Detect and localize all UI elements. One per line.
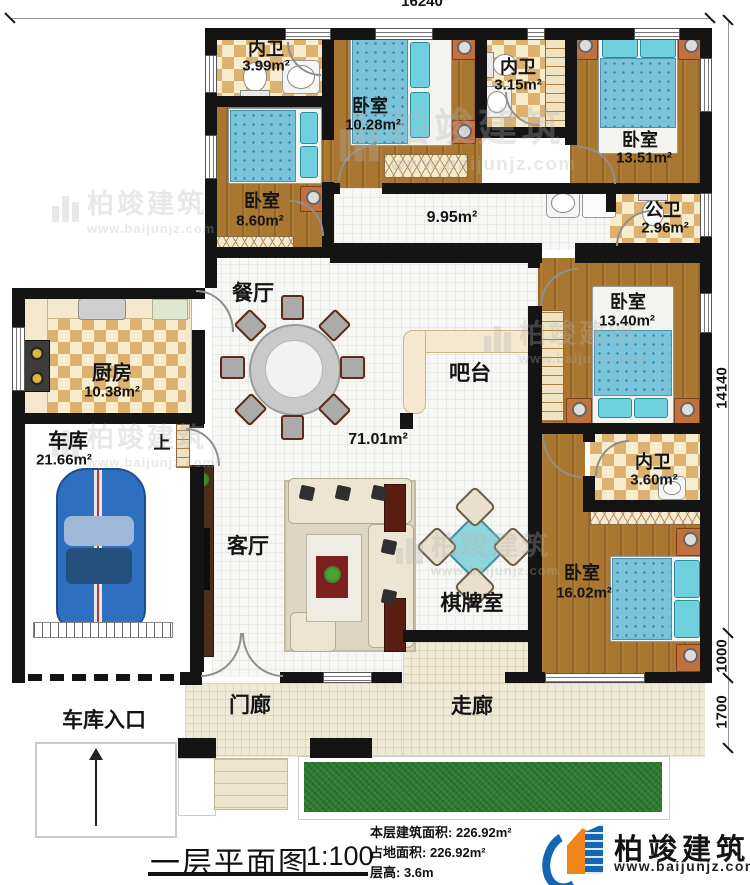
wall (505, 672, 545, 683)
bed-pillow (410, 92, 430, 138)
bed-pillow (300, 146, 318, 178)
bed-duvet (600, 58, 676, 128)
stoop (178, 758, 216, 816)
room-area-bedroom-b: 13.51m² (616, 150, 672, 167)
car-roof (66, 548, 132, 584)
window (205, 135, 217, 179)
hallway-floor (334, 188, 624, 250)
bed-duvet (230, 110, 296, 182)
room-label-living: 客厅 (227, 530, 269, 560)
car-windshield (64, 516, 134, 546)
bed-duvet (594, 330, 672, 396)
room-area-bedroom-c: 8.60m² (236, 213, 284, 230)
dimension-right-value: 14140 (714, 367, 731, 409)
wardrobe (384, 154, 468, 178)
stat-label: 本层建筑面积: (370, 825, 452, 840)
dimension-line-top (10, 18, 710, 19)
bed-pillow (634, 398, 668, 418)
wall (583, 476, 595, 502)
room-label-gongwei: 公卫 (645, 196, 681, 222)
bar-counter (403, 330, 426, 414)
wall (700, 28, 712, 683)
room-label-dining: 餐厅 (232, 277, 274, 307)
sofa-pillow (299, 485, 316, 502)
wall (528, 423, 712, 434)
sofa-pillow (335, 485, 352, 502)
sofa-pillow (381, 589, 398, 606)
window (700, 58, 712, 112)
stat-value: 226.92m² (430, 845, 486, 860)
stat-floor-height: 层高: 3.6m (370, 862, 434, 881)
stat-building-area: 本层建筑面积: 226.92m² (370, 822, 512, 841)
dimension-1000-value: 1000 (714, 639, 731, 672)
side-cabinet (384, 598, 406, 652)
bed-duvet (612, 558, 672, 640)
dining-chair (281, 295, 304, 320)
room-area-garage: 21.66m² (36, 452, 92, 469)
wall (475, 28, 487, 138)
corridor-floor (403, 683, 705, 757)
wall (322, 28, 334, 140)
closet (541, 310, 564, 422)
room-area-kitchen: 10.38m² (84, 384, 140, 401)
wall (400, 413, 413, 429)
driveway-arrow (95, 756, 97, 826)
room-label-garage: 车库 (48, 425, 88, 454)
wall (372, 672, 402, 683)
wall (583, 500, 712, 512)
stat-value: 3.6m (404, 865, 434, 880)
driveway (35, 742, 177, 838)
room-area-neiwei-b: 3.15m² (494, 77, 542, 94)
drawing-scale: 1:100 (306, 841, 374, 872)
kitchen-sink-icon (78, 298, 126, 320)
dining-chair (340, 356, 365, 379)
wall (575, 243, 712, 263)
kitchen-appliance (152, 299, 188, 320)
room-area-bedroom-e: 16.02m² (556, 585, 612, 602)
driveway-arrow-head (89, 748, 103, 760)
room-area-neiwei-c: 3.60m² (630, 472, 678, 489)
dimension-1700-value: 1700 (714, 695, 731, 728)
wall (606, 194, 616, 212)
wall (475, 127, 575, 138)
dining-chair (281, 415, 304, 440)
wall (205, 96, 334, 107)
room-label-kitchen: 厨房 (92, 357, 132, 386)
room-label-bedroom-d: 卧室 (610, 288, 646, 314)
garage-door-dashed (28, 674, 178, 681)
wall (280, 672, 323, 683)
room-label-bedroom-c: 卧室 (244, 187, 280, 213)
watermark-logo-icon (52, 196, 79, 222)
wall (528, 306, 542, 676)
stat-label: 层高: (370, 865, 400, 880)
entry-steps (214, 758, 288, 810)
dining-chair (220, 356, 245, 379)
room-label-bedroom-b: 卧室 (622, 126, 658, 152)
bed-pillow (410, 42, 430, 88)
room-label-bar: 吧台 (449, 357, 491, 387)
stat-value: 226.92m² (456, 825, 512, 840)
title-underline (148, 872, 368, 876)
room-area-neiwei-a: 3.99m² (242, 58, 290, 75)
porch-pillar (310, 738, 372, 758)
window (527, 28, 545, 40)
wall (583, 434, 595, 442)
room-area-gongwei: 2.96m² (641, 220, 689, 237)
room-label-bedroom-e: 卧室 (564, 559, 600, 585)
lawn (304, 762, 662, 812)
hallway-area: 9.95m² (427, 209, 478, 227)
room-area-living: 71.01m² (348, 431, 408, 449)
nightstand (452, 120, 476, 144)
window (12, 327, 25, 391)
nightstand (674, 398, 700, 424)
bed-pillow (300, 112, 318, 144)
floor-plan: 16240 14140 1000 1700 (0, 0, 750, 885)
parking-stop-strip (33, 622, 173, 638)
stove-icon (24, 340, 50, 392)
brand-website: www.baijunjz.com (614, 858, 750, 874)
watermark: 柏竣建筑www.baijunjz.com (52, 182, 215, 236)
window (545, 673, 645, 683)
wall (205, 247, 334, 258)
wall (192, 330, 205, 424)
window (323, 672, 372, 683)
bed-pillow (598, 398, 632, 418)
wall (334, 183, 340, 194)
room-label-chess: 棋牌室 (441, 587, 504, 617)
stairs-up-label: 上 (154, 429, 171, 454)
window (205, 55, 217, 93)
wall (645, 672, 712, 683)
closet (545, 33, 566, 131)
wall (565, 28, 577, 145)
wall (403, 630, 542, 642)
dimension-top-value: 16240 (401, 0, 443, 10)
window (285, 28, 331, 40)
wall (12, 288, 205, 299)
sofa-pillow (381, 539, 398, 556)
stat-label: 占地面积: (370, 845, 426, 860)
room-label-bedroom-a: 卧室 (352, 92, 388, 118)
wall (180, 672, 202, 685)
room-area-bedroom-a: 10.28m² (345, 117, 401, 134)
brand-logo-icon (543, 822, 609, 882)
stat-land-area: 占地面积: 226.92m² (370, 842, 486, 861)
sofa-pillow (371, 485, 388, 502)
wall (382, 183, 712, 194)
room-area-bedroom-d: 13.40m² (599, 313, 655, 330)
room-label-neiwei-c: 内卫 (635, 448, 671, 474)
wall (528, 263, 540, 268)
window (634, 28, 680, 40)
room-label-neiwei-b: 内卫 (500, 53, 536, 79)
dining-table-top (265, 340, 323, 398)
bed-pillow (674, 600, 700, 638)
plant-icon (324, 566, 341, 583)
wall (190, 424, 204, 428)
logo-building-blue (585, 824, 603, 874)
room-label-corridor: 走廊 (451, 690, 493, 720)
room-label-porch: 门廊 (229, 689, 271, 719)
nightstand (566, 398, 592, 424)
room-label-garage-entrance: 车库入口 (62, 704, 146, 734)
window (700, 193, 712, 237)
side-cabinet (384, 484, 406, 532)
window (375, 28, 433, 40)
bed-pillow (674, 560, 700, 598)
porch-pillar (178, 738, 216, 758)
wall (330, 243, 542, 263)
window (700, 293, 712, 333)
watermark-text: 柏竣建筑www.baijunjz.com (87, 182, 215, 236)
wall (12, 413, 205, 424)
